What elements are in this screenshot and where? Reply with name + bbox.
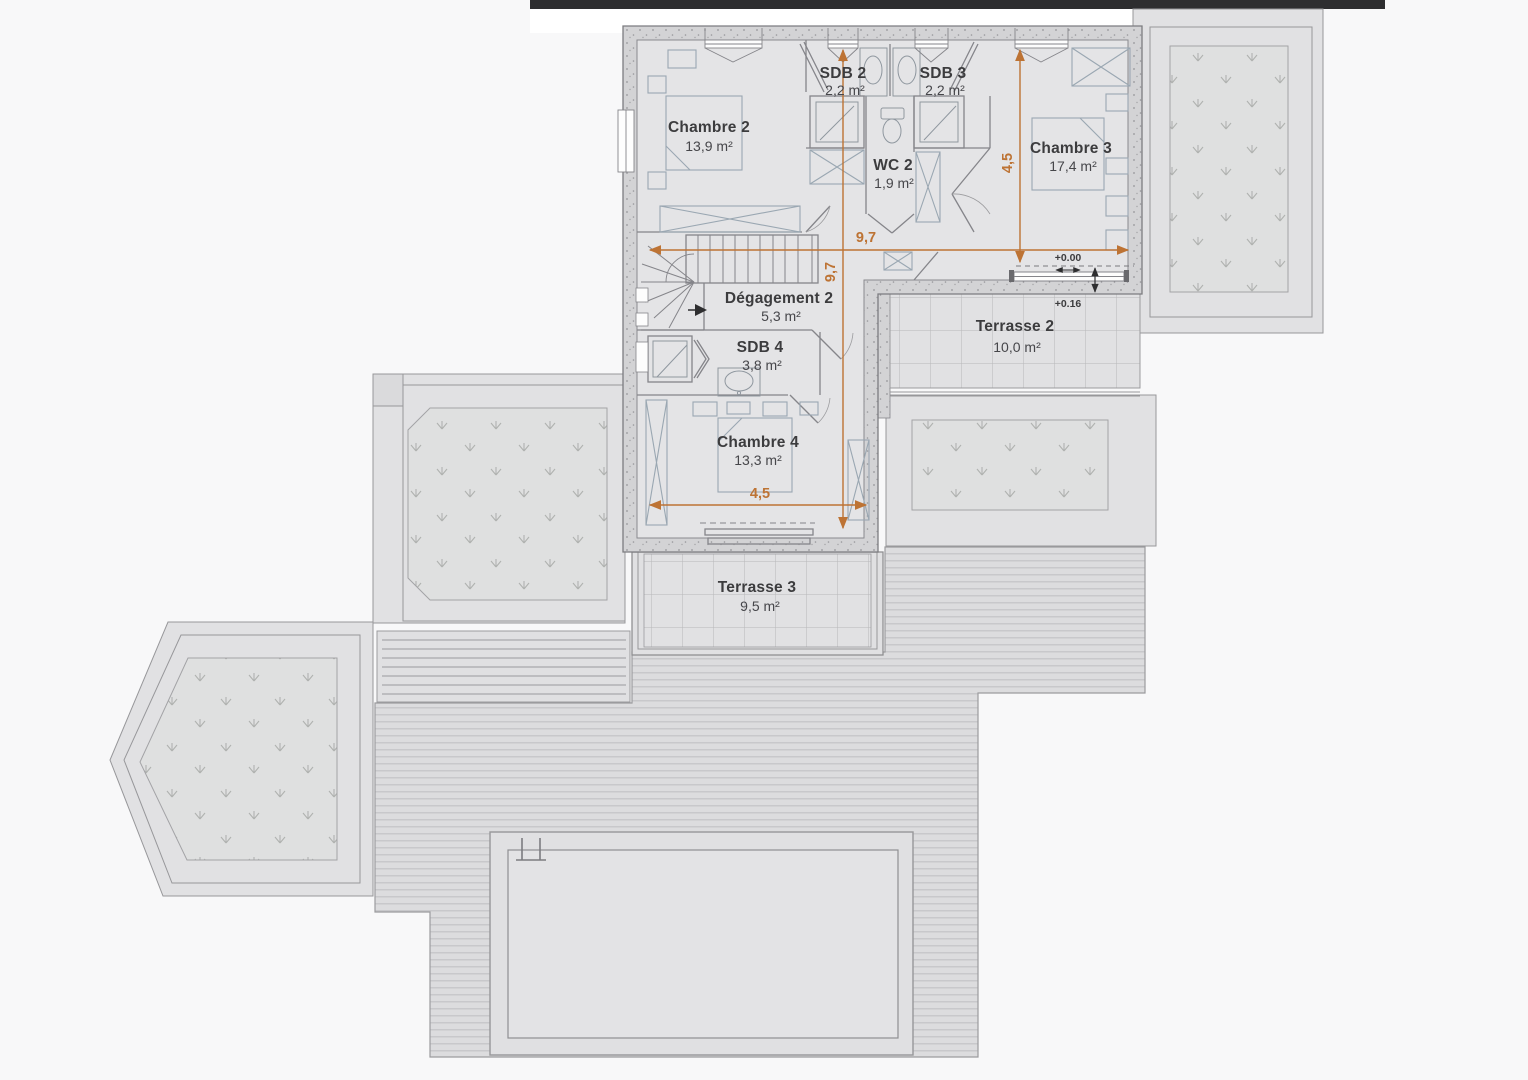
garden-steps [377, 631, 630, 702]
room-name-wc2: WC 2 [873, 157, 913, 174]
dimension-label: 4,5 [1000, 153, 1016, 173]
planter-panel-east [886, 395, 1156, 546]
wall-niche [636, 288, 648, 302]
elevation-label: +0.16 [1055, 298, 1082, 310]
top-dark-bar [530, 0, 1385, 9]
dimension-label: 4,5 [750, 486, 770, 502]
elevation-label: +0.00 [1055, 252, 1082, 264]
room-area-chambre3: 17,4 m² [1049, 158, 1097, 174]
room-name-sdb3: SDB 3 [920, 65, 967, 82]
room-name-sdb4: SDB 4 [737, 339, 784, 356]
room-name-terrasse2: Terrasse 2 [976, 318, 1054, 335]
planted-bed [912, 420, 1108, 510]
room-area-sdb2: 2,2 m² [825, 82, 865, 98]
pool-basin [508, 850, 898, 1038]
room-name-degagement2: Dégagement 2 [725, 290, 833, 307]
door-post [1124, 270, 1129, 282]
room-name-chambre2: Chambre 2 [668, 119, 750, 136]
room-area-degagement2: 5,3 m² [761, 308, 801, 324]
room-name-terrasse3: Terrasse 3 [718, 579, 797, 596]
room-name-chambre4: Chambre 4 [717, 434, 799, 451]
room-area-chambre2: 13,9 m² [685, 138, 733, 154]
wall-niche [636, 342, 648, 372]
planter-panel-west [373, 374, 625, 623]
dimension-label: 9,7 [856, 230, 876, 246]
room-area-terrasse3: 9,5 m² [740, 598, 780, 614]
planter-panel-northeast [1133, 9, 1323, 333]
floor-plan-drawing: 9,7 9,7 4,5 4,5 +0.00 +0.16 Chambre 2 13… [0, 0, 1528, 1080]
room-name-chambre3: Chambre 3 [1030, 140, 1112, 157]
planter-corner-tab [373, 374, 403, 406]
door-post [1009, 270, 1014, 282]
floor-plan-page: 9,7 9,7 4,5 4,5 +0.00 +0.16 Chambre 2 13… [0, 0, 1528, 1080]
room-area-chambre4: 13,3 m² [734, 452, 782, 468]
room-name-sdb2: SDB 2 [820, 65, 867, 82]
swimming-pool [490, 832, 913, 1055]
wall-niche [636, 313, 648, 326]
room-area-sdb3: 2,2 m² [925, 82, 965, 98]
planted-bed [408, 408, 607, 600]
room-area-wc2: 1,9 m² [874, 175, 914, 191]
room-area-terrasse2: 10,0 m² [993, 339, 1041, 355]
dimension-label: 9,7 [823, 262, 839, 282]
room-area-sdb4: 3,8 m² [742, 357, 782, 373]
planted-bed [1170, 46, 1288, 292]
